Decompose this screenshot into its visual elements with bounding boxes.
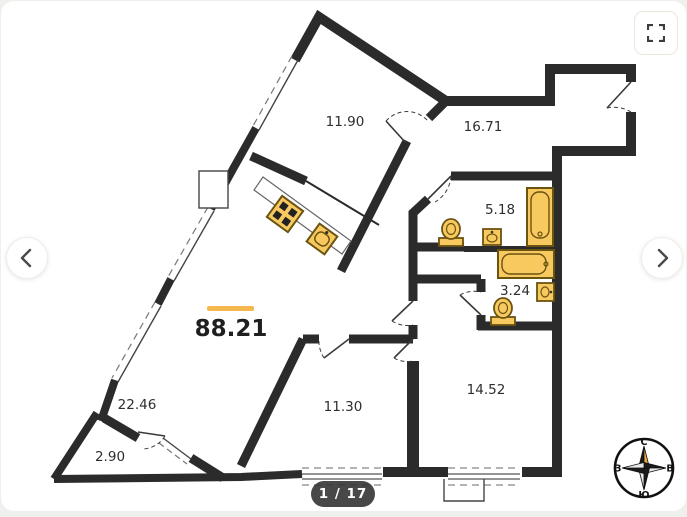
room-area-label: 2.90 (95, 449, 125, 465)
door-swing (319, 339, 349, 358)
toilet-icon (439, 219, 463, 246)
door-swing (460, 291, 481, 315)
room-area-label: 3.24 (500, 283, 530, 299)
window (253, 56, 298, 130)
bathtub-icon (527, 188, 553, 246)
total-area: 88.21 (195, 306, 268, 342)
floor-plan-svg: 11.90 16.71 5.18 3.24 22.46 2.90 11.30 1… (1, 1, 687, 513)
chevron-right-icon (642, 238, 682, 278)
door-swing (386, 112, 427, 142)
facade-niche (199, 171, 228, 208)
room-area-label: 5.18 (485, 202, 515, 218)
total-area-label: 88.21 (195, 316, 268, 342)
room-area-label: 22.46 (118, 397, 157, 413)
plan-card: 11.90 16.71 5.18 3.24 22.46 2.90 11.30 1… (0, 0, 687, 512)
room-area-label: 11.90 (326, 114, 365, 130)
door-swing-balcony (138, 432, 165, 449)
floor-plan: 11.90 16.71 5.18 3.24 22.46 2.90 11.30 1… (1, 1, 686, 511)
bathroom-sink-icon (537, 283, 554, 301)
room-area-label: 11.30 (324, 399, 363, 415)
windows (112, 56, 520, 485)
prev-slide-button[interactable] (6, 237, 48, 279)
bathroom-sink-icon (483, 229, 501, 245)
room-area-label: 16.71 (464, 119, 503, 135)
toilet-icon (491, 298, 515, 325)
room-labels: 11.90 16.71 5.18 3.24 22.46 2.90 11.30 1… (95, 114, 530, 465)
total-area-underline (207, 306, 254, 311)
lower-balcony-outline (444, 479, 484, 501)
window (112, 302, 161, 382)
fullscreen-icon (647, 24, 665, 42)
next-slide-button[interactable] (641, 237, 683, 279)
compass-west-label: З (615, 464, 622, 475)
compass-east-label: В (666, 464, 673, 475)
window (168, 207, 214, 281)
compass-rose: С В Ю З (608, 432, 680, 504)
room-area-label: 14.52 (467, 382, 506, 398)
chevron-left-icon (7, 238, 47, 278)
page-indicator: 1 / 17 (311, 481, 375, 507)
fullscreen-button[interactable] (634, 11, 678, 55)
door-swing (392, 301, 413, 326)
window (159, 438, 191, 464)
door-swing-entrance (607, 82, 631, 112)
door-swing (428, 176, 451, 202)
compass-south-label: Ю (638, 490, 649, 501)
bathtub-icon (498, 250, 554, 278)
compass-north-label: С (641, 437, 648, 448)
